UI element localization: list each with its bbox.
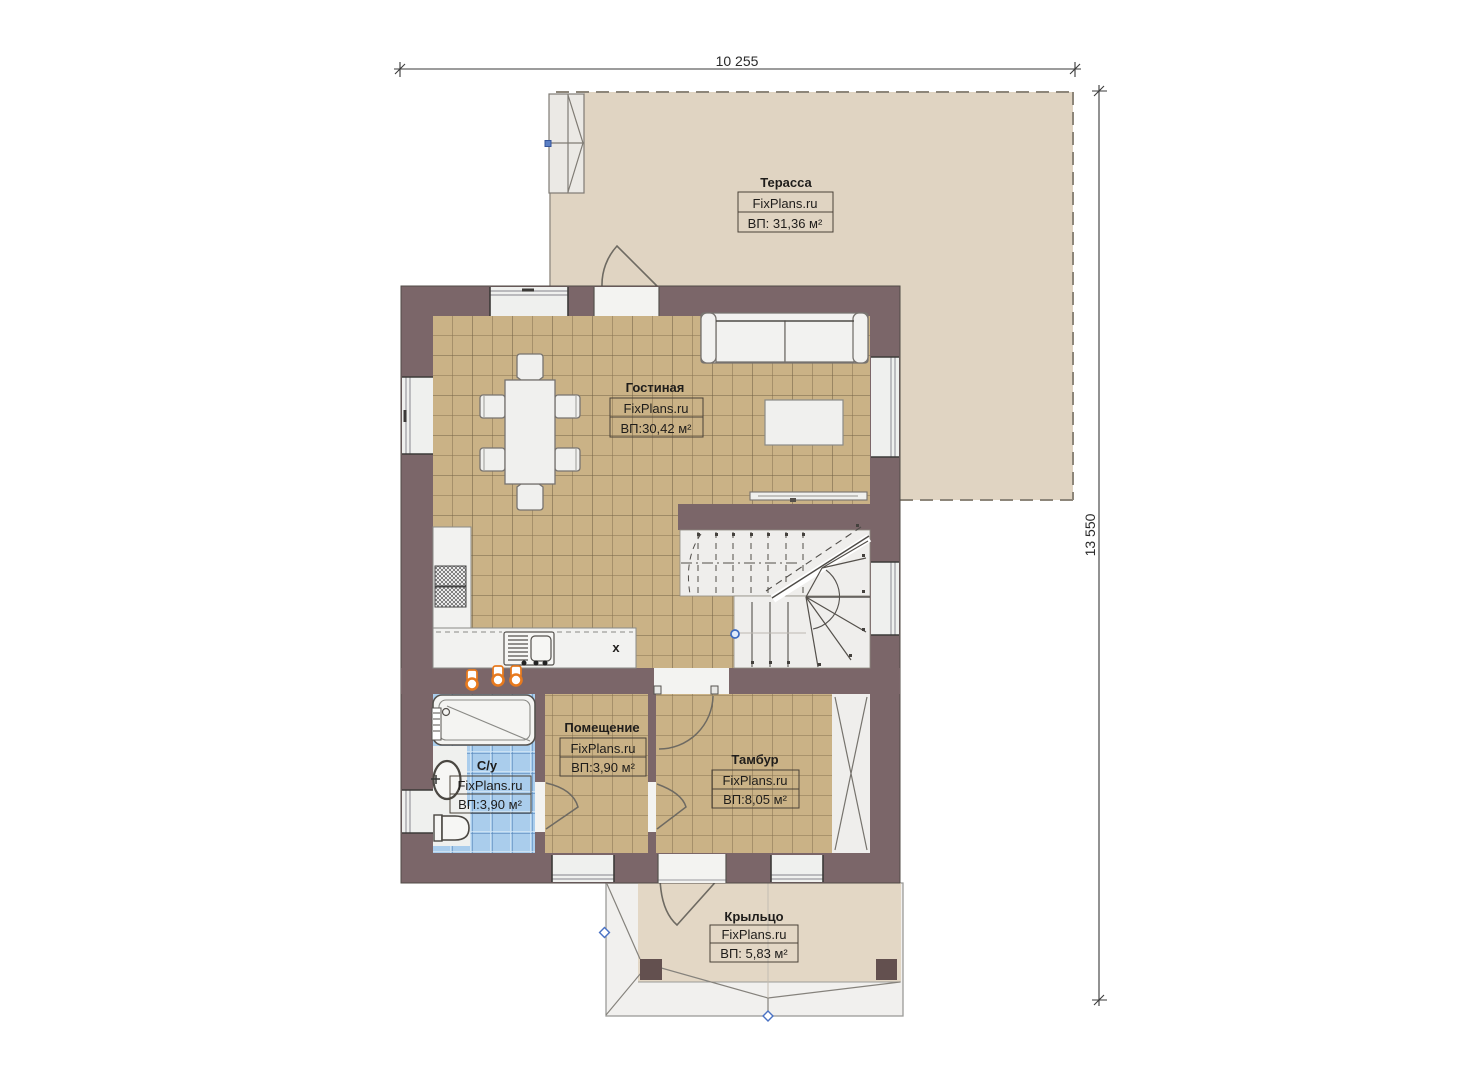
svg-text:ВП:3,90 м²: ВП:3,90 м² xyxy=(571,760,635,775)
svg-text:FixPlans.ru: FixPlans.ru xyxy=(570,741,635,756)
svg-text:Помещение: Помещение xyxy=(564,720,639,735)
svg-text:FixPlans.ru: FixPlans.ru xyxy=(722,773,787,788)
svg-text:ВП: 5,83 м²: ВП: 5,83 м² xyxy=(720,946,788,961)
svg-text:С/у: С/у xyxy=(477,758,498,773)
svg-text:Гостиная: Гостиная xyxy=(626,380,685,395)
svg-text:ВП:8,05 м²: ВП:8,05 м² xyxy=(723,792,787,807)
svg-text:ВП:3,90 м²: ВП:3,90 м² xyxy=(458,797,522,812)
svg-text:Тамбур: Тамбур xyxy=(731,752,778,767)
svg-text:10 255: 10 255 xyxy=(716,53,759,69)
svg-text:FixPlans.ru: FixPlans.ru xyxy=(721,927,786,942)
svg-text:ВП: 31,36 м²: ВП: 31,36 м² xyxy=(748,216,823,231)
svg-text:Терасса: Терасса xyxy=(760,175,812,190)
svg-text:Крыльцо: Крыльцо xyxy=(724,909,783,924)
svg-text:ВП:30,42 м²: ВП:30,42 м² xyxy=(620,421,692,436)
svg-text:13 550: 13 550 xyxy=(1082,513,1098,556)
svg-text:FixPlans.ru: FixPlans.ru xyxy=(623,401,688,416)
svg-text:FixPlans.ru: FixPlans.ru xyxy=(752,196,817,211)
svg-text:FixPlans.ru: FixPlans.ru xyxy=(457,778,522,793)
svg-text:x: x xyxy=(612,640,620,655)
